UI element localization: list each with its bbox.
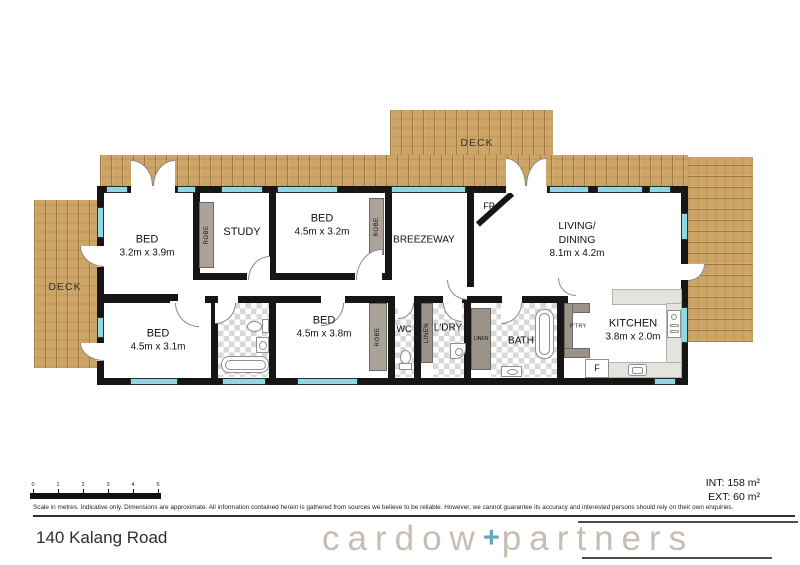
scale-tick-label: 1 [56,482,59,488]
window [277,186,338,193]
wall [557,296,564,385]
scale-tick-label: 4 [131,482,134,488]
basin-icon [501,366,522,377]
linen-label: LINEN [424,323,430,343]
page-title: 140 Kalang Road [36,528,167,548]
stove-icon [667,310,681,338]
wall [193,273,247,280]
logo-word-right: partners [502,519,694,558]
robe-label: ROBE [375,327,381,346]
window [97,207,104,238]
bathtub-icon [535,309,554,359]
logo-line-top [578,521,798,523]
wall [385,193,392,280]
room-label-breezeway: BREEZEWAY [393,234,455,247]
room-label-living: LIVING/DINING8.1m x 4.2m [549,220,604,260]
room-label-bed2: BED4.5m x 3.2m [294,211,349,238]
basin-icon [256,337,269,353]
room-label-kitchen: KITCHEN3.8m x 2.0m [605,316,660,343]
room-label-bath: BATH [508,335,534,348]
room-label-ptry: P'TRY [570,323,587,330]
window [549,186,589,193]
deck-right [688,157,753,342]
agency-logo: cardow+partners [322,519,798,561]
window [597,186,643,193]
room-label-bed1: BED3.2m x 3.9m [119,232,174,259]
scale-tick-label: 2 [81,482,84,488]
scale-bar: 0 1 2 3 4 5 [30,482,165,500]
room-label-wc: WC [397,324,412,336]
wall [271,296,321,303]
wall [464,296,471,385]
window [130,378,178,385]
wall [414,296,421,385]
wall [238,296,271,303]
scale-tick-label: 3 [106,482,109,488]
linen-label: LINEN [474,336,489,343]
window [177,186,196,193]
toilet-icon [400,350,411,364]
wall [269,193,276,280]
pantry-shelf-bottom [564,348,590,358]
fridge-label: F [594,363,600,375]
robe-label: ROBE [204,225,210,244]
window [297,378,358,385]
window [681,307,688,343]
scale-tick-label: 0 [31,482,34,488]
wall [467,193,474,287]
window [654,378,676,385]
kitchen-sink-icon [628,364,647,376]
wall [269,273,355,280]
window [222,378,266,385]
deck-top-strip [100,155,688,187]
logo-plus-icon: + [483,522,502,554]
deck-top-upper [390,110,553,156]
logo-line-bottom [582,557,772,559]
door-opening [131,186,175,193]
door-opening [681,264,688,280]
toilet-icon [247,321,262,332]
window [391,186,466,193]
wall [388,296,395,385]
toilet-icon [262,319,269,333]
robe-label: ROBE [374,217,380,236]
room-label-fp: FP [483,201,495,213]
window [681,213,688,240]
footer-divider [33,515,795,517]
deck-top-label: DECK [460,137,493,149]
wall [345,296,392,303]
window [97,317,104,338]
floor-plan: DECK DECK [0,0,800,470]
logo-word-left: cardow [322,519,483,558]
disclaimer-text: Scale in metres. Indicative only. Dimens… [33,504,795,511]
deck-left-label: DECK [48,281,81,293]
window [221,186,263,193]
scale-tick-label: 5 [156,482,159,488]
scale-rule [30,493,161,499]
room-label-ldry: L'DRY [434,322,462,335]
window [106,186,128,193]
toilet-icon [399,363,412,370]
window [649,186,671,193]
floorplan-page: DECK DECK [0,0,800,565]
room-label-bed3: BED4.5m x 3.1m [130,326,185,353]
wall [104,296,170,303]
floor-areas: INT: 158 m² EXT: 60 m² [706,477,760,504]
wall [269,296,276,385]
door-opening [506,186,547,193]
external-area: EXT: 60 m² [706,491,760,505]
internal-area: INT: 158 m² [706,477,760,491]
room-label-bed4: BED4.5m x 3.8m [296,313,351,340]
room-label-study: STUDY [223,225,260,239]
bathtub-icon [221,356,269,373]
